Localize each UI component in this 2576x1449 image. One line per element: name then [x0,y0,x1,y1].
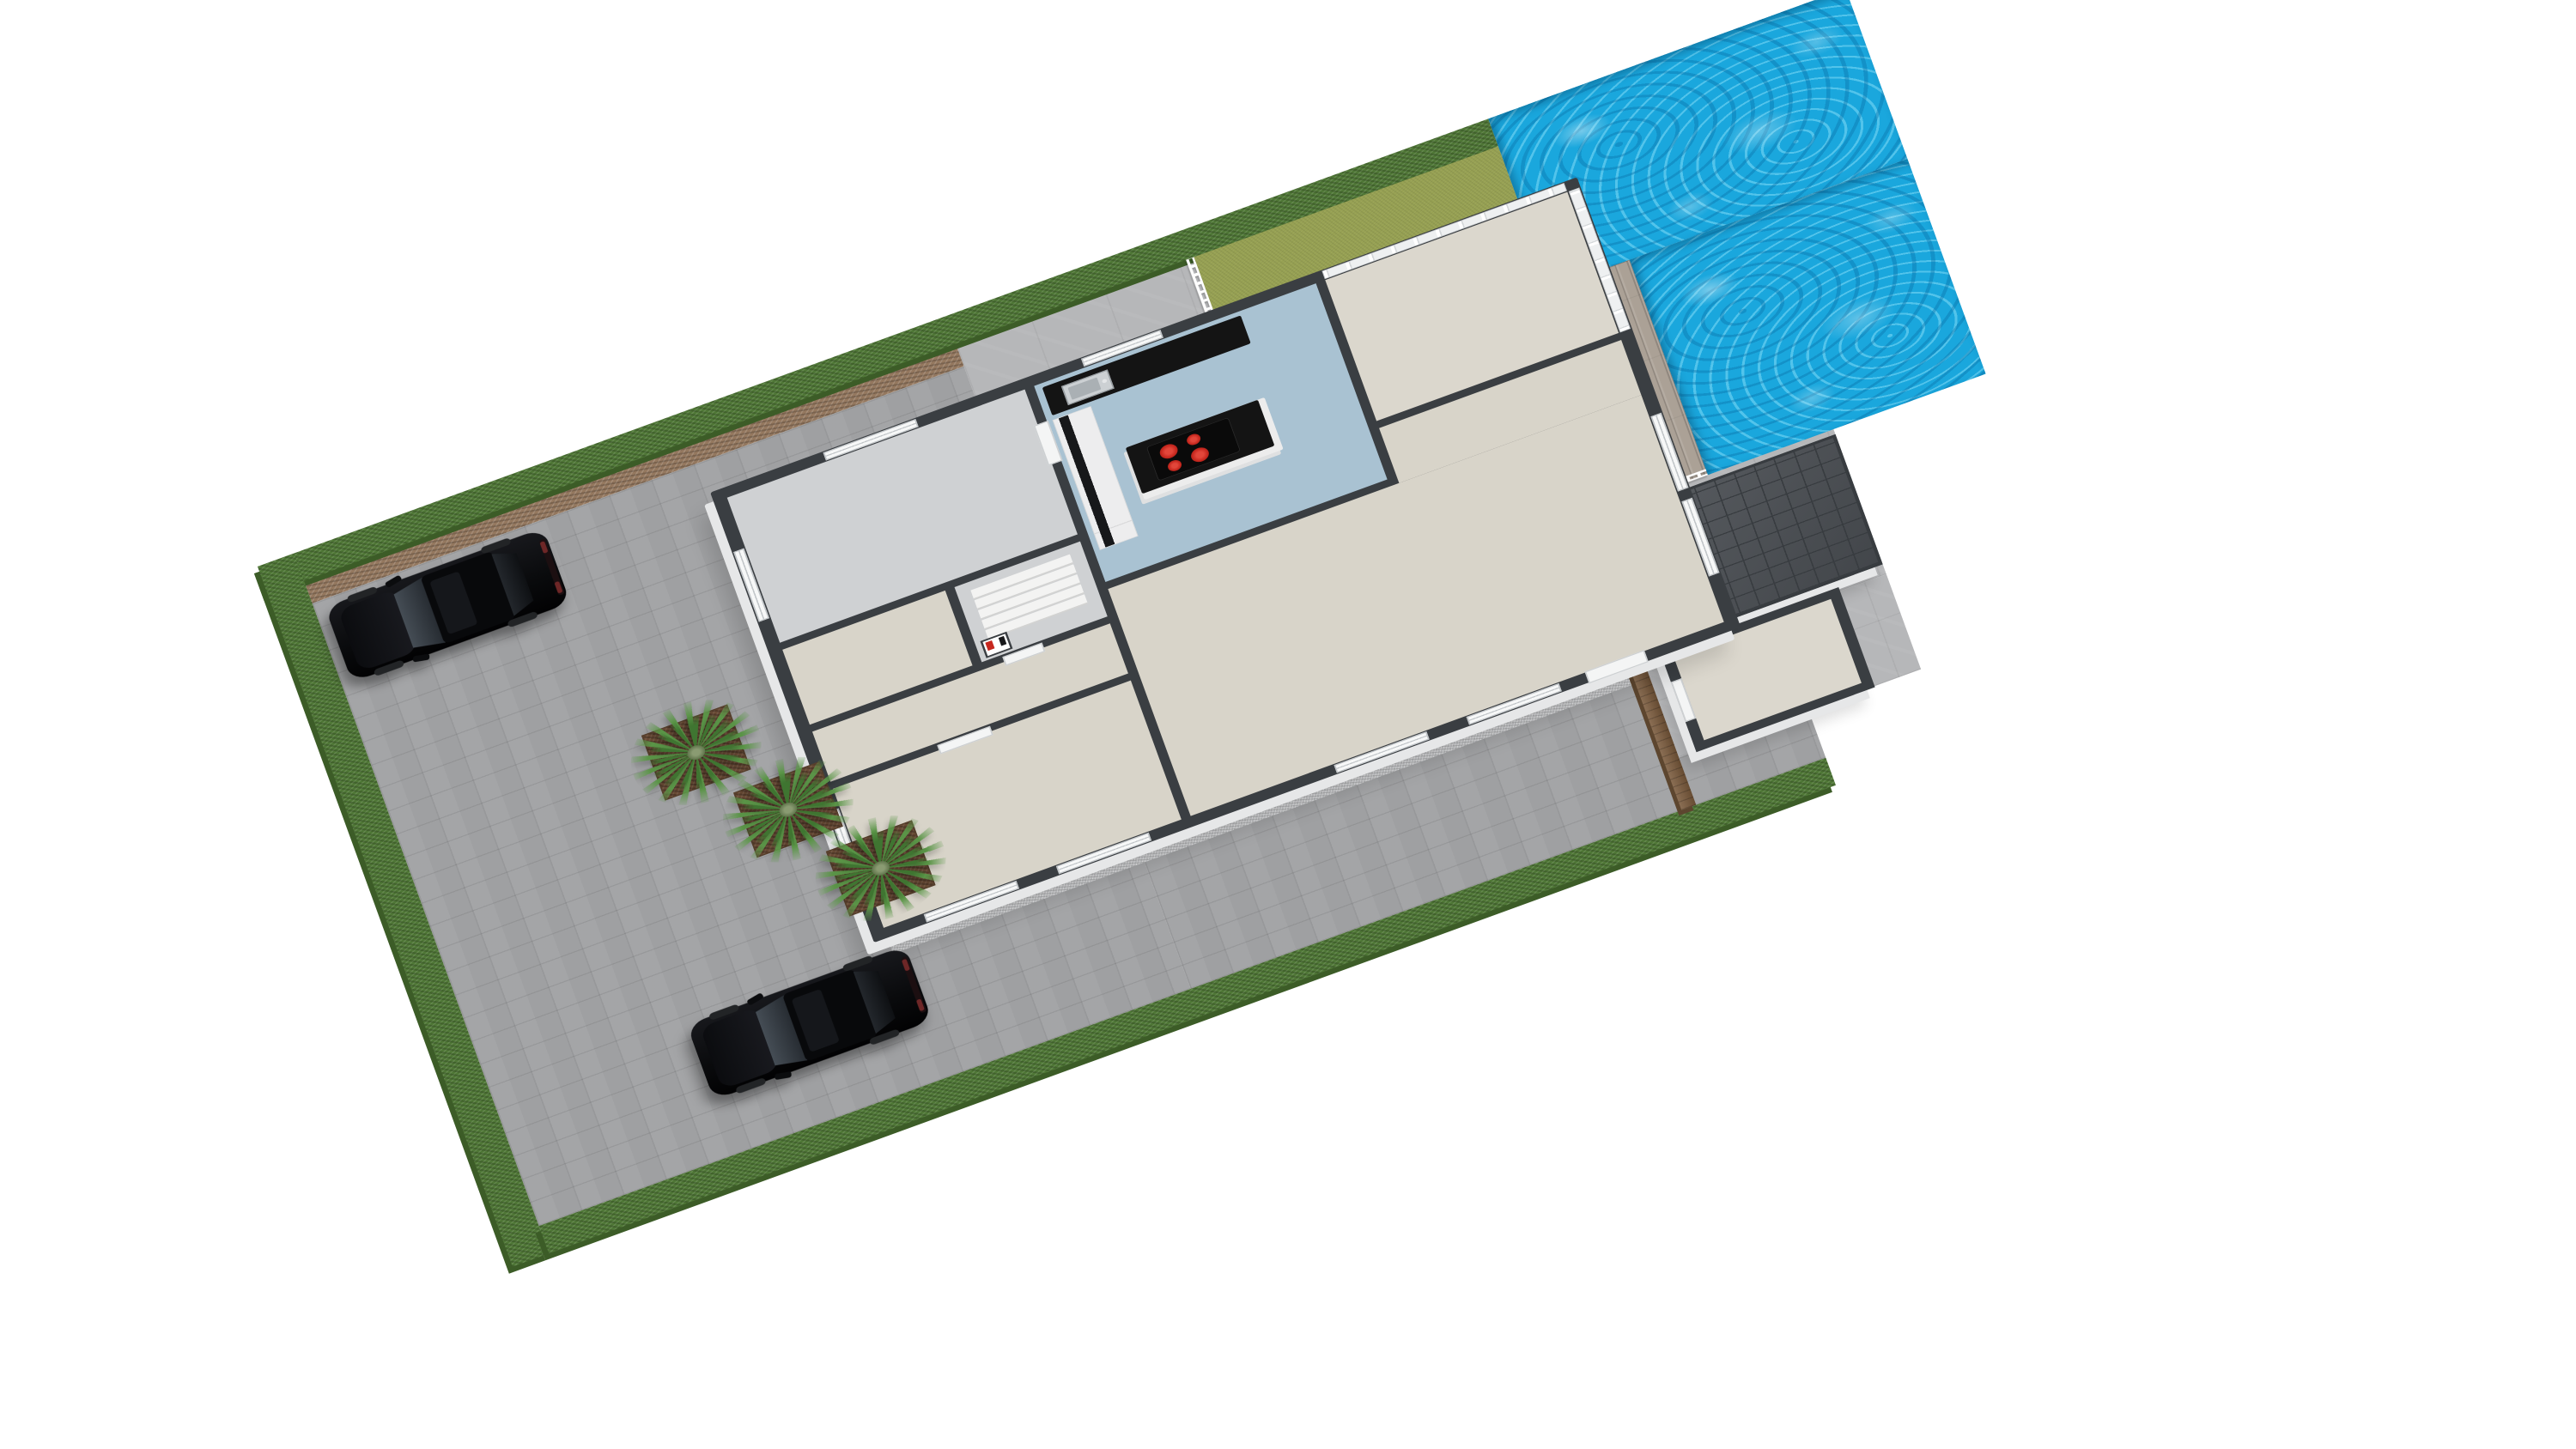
burner [1157,442,1180,461]
floorplan-3d-scene [0,0,2576,1449]
burner [1166,458,1183,473]
burner [1189,446,1212,464]
burner [1185,432,1202,446]
property-plot [258,0,2100,1267]
